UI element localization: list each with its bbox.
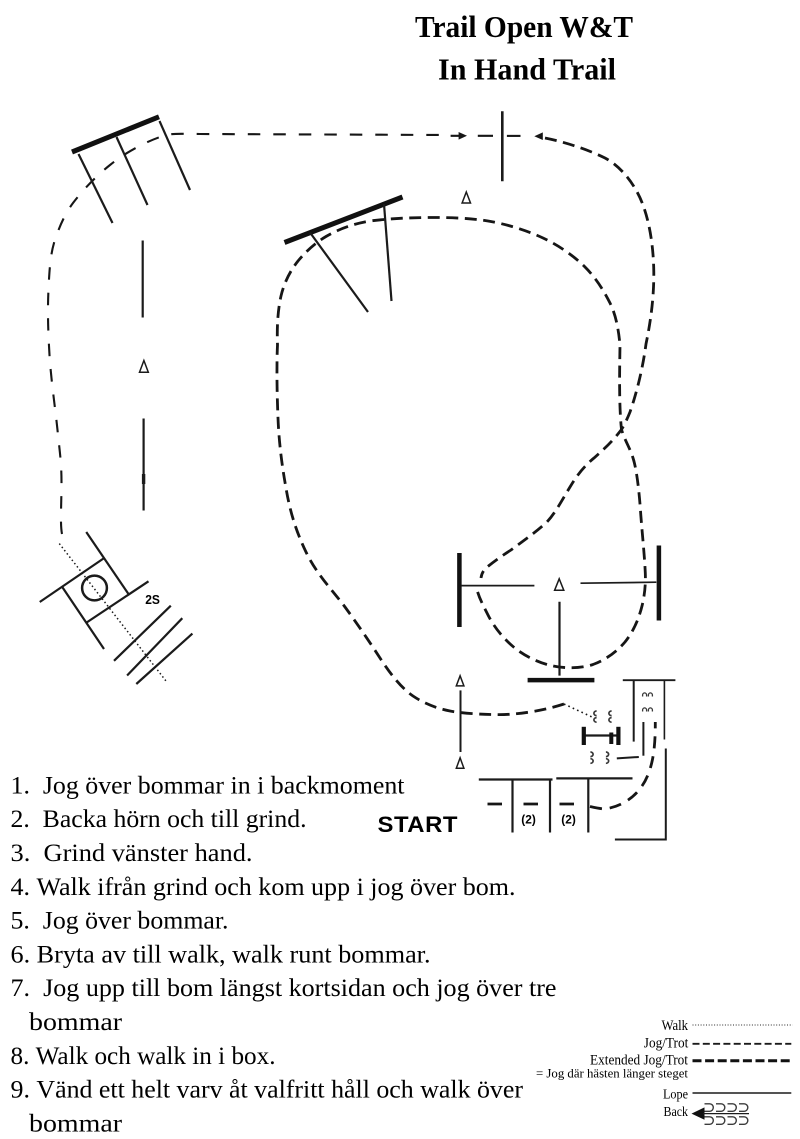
svg-text:Lope: Lope bbox=[663, 1088, 688, 1103]
svg-text:bommar: bommar bbox=[29, 1108, 122, 1137]
svg-text:2S: 2S bbox=[145, 592, 160, 607]
svg-text:Jog/Trot: Jog/Trot bbox=[644, 1035, 689, 1051]
svg-text:7. Jog upp till bom längst ko: 7. Jog upp till bom längst kortsidan och… bbox=[11, 973, 557, 1002]
svg-text:9. Vänd ett helt varv åt valfr: 9. Vänd ett helt varv åt valfritt håll o… bbox=[11, 1075, 524, 1104]
svg-text:In Hand Trail: In Hand Trail bbox=[438, 53, 616, 87]
svg-text:5. Jog över bommar.: 5. Jog över bommar. bbox=[11, 906, 229, 935]
svg-text:(2): (2) bbox=[561, 813, 576, 827]
svg-text:Walk: Walk bbox=[662, 1018, 689, 1034]
svg-text:3. Grind vänster hand.: 3. Grind vänster hand. bbox=[11, 838, 253, 867]
svg-text:8. Walk och walk in i box.: 8. Walk och walk in i box. bbox=[11, 1041, 276, 1070]
svg-text:(2): (2) bbox=[521, 813, 536, 827]
svg-text:START: START bbox=[378, 812, 459, 837]
svg-text:2. Backa hörn och till grind.: 2. Backa hörn och till grind. bbox=[11, 804, 307, 833]
svg-text:Back: Back bbox=[664, 1105, 689, 1120]
svg-text:= Jog där hästen länger steget: = Jog där hästen länger steget bbox=[536, 1067, 689, 1081]
svg-text:bommar: bommar bbox=[29, 1007, 122, 1036]
svg-text:4. Walk ifrån grind och kom up: 4. Walk ifrån grind och kom upp i jog öv… bbox=[11, 872, 516, 901]
svg-text:Trail Open W&T: Trail Open W&T bbox=[415, 10, 633, 44]
svg-text:6. Bryta av till walk, walk ru: 6. Bryta av till walk, walk runt bommar. bbox=[11, 939, 431, 968]
svg-text:1. Jog över bommar in i backm: 1. Jog över bommar in i backmoment bbox=[11, 770, 405, 799]
